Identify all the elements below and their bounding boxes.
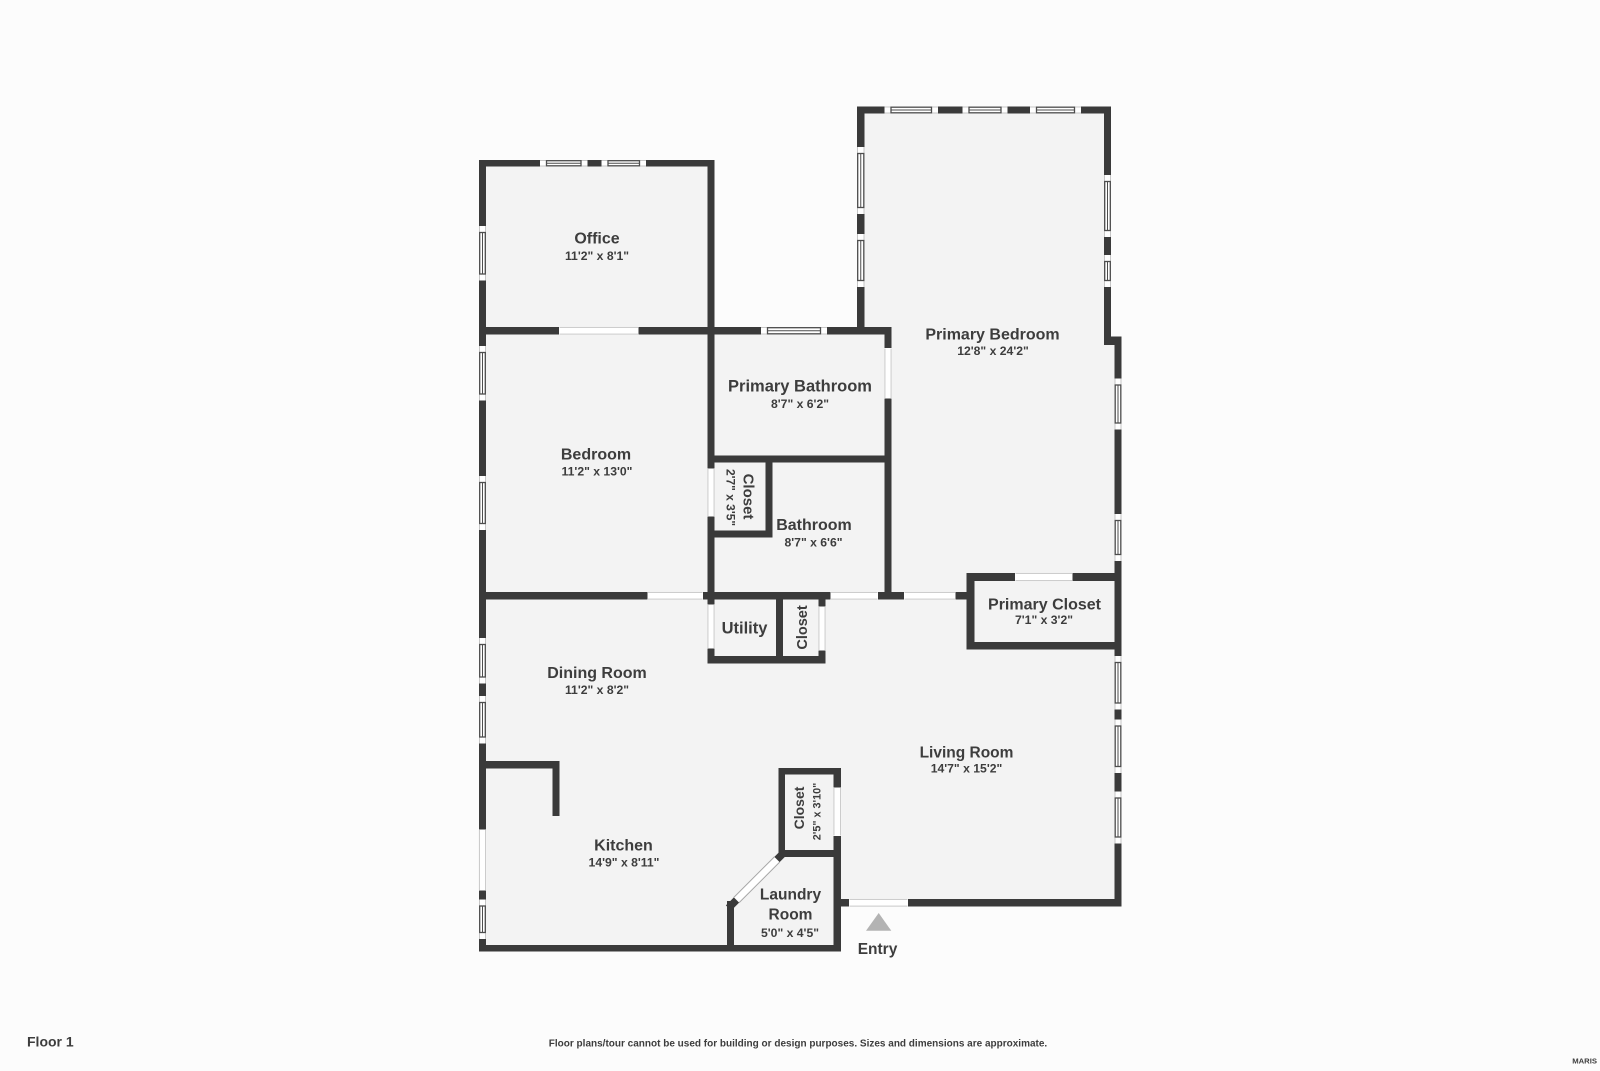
svg-text:Primary Closet: Primary Closet <box>988 597 1102 614</box>
svg-text:Office: Office <box>574 231 619 248</box>
svg-text:Living Room: Living Room <box>920 745 1014 762</box>
svg-text:11'2" x 13'0": 11'2" x 13'0" <box>562 465 633 479</box>
svg-text:Floor plans/tour cannot be use: Floor plans/tour cannot be used for buil… <box>549 1039 1048 1050</box>
svg-text:Primary Bathroom: Primary Bathroom <box>728 378 872 396</box>
svg-text:8'7" x 6'2": 8'7" x 6'2" <box>771 397 829 411</box>
svg-text:Entry: Entry <box>858 941 898 958</box>
svg-text:Bedroom: Bedroom <box>561 447 631 464</box>
svg-text:14'9" x 8'11": 14'9" x 8'11" <box>589 856 660 870</box>
svg-text:11'2" x 8'2": 11'2" x 8'2" <box>565 683 629 697</box>
svg-text:Kitchen: Kitchen <box>594 838 653 855</box>
svg-text:12'8" x 24'2": 12'8" x 24'2" <box>957 344 1029 358</box>
svg-text:MARIS: MARIS <box>1572 1057 1597 1066</box>
svg-text:Closet: Closet <box>740 474 757 520</box>
svg-text:2'7" x 3'5": 2'7" x 3'5" <box>724 469 738 526</box>
svg-text:Closet: Closet <box>795 605 811 649</box>
svg-text:2'5" x 3'10": 2'5" x 3'10" <box>811 783 823 840</box>
svg-text:Floor 1: Floor 1 <box>27 1034 74 1050</box>
svg-text:Bathroom: Bathroom <box>776 517 852 534</box>
svg-text:7'1" x 3'2": 7'1" x 3'2" <box>1015 613 1073 627</box>
svg-text:14'7" x 15'2": 14'7" x 15'2" <box>931 762 1003 776</box>
svg-text:5'0" x 4'5": 5'0" x 4'5" <box>761 926 819 940</box>
svg-text:11'2" x 8'1": 11'2" x 8'1" <box>565 249 629 263</box>
svg-text:8'7" x 6'6": 8'7" x 6'6" <box>784 536 842 550</box>
svg-text:Utility: Utility <box>722 620 769 638</box>
svg-text:Closet: Closet <box>791 786 807 829</box>
svg-text:Room: Room <box>769 907 813 924</box>
svg-text:Dining Room: Dining Room <box>547 665 647 682</box>
svg-text:Primary Bedroom: Primary Bedroom <box>925 327 1059 344</box>
svg-text:Laundry: Laundry <box>760 887 822 904</box>
